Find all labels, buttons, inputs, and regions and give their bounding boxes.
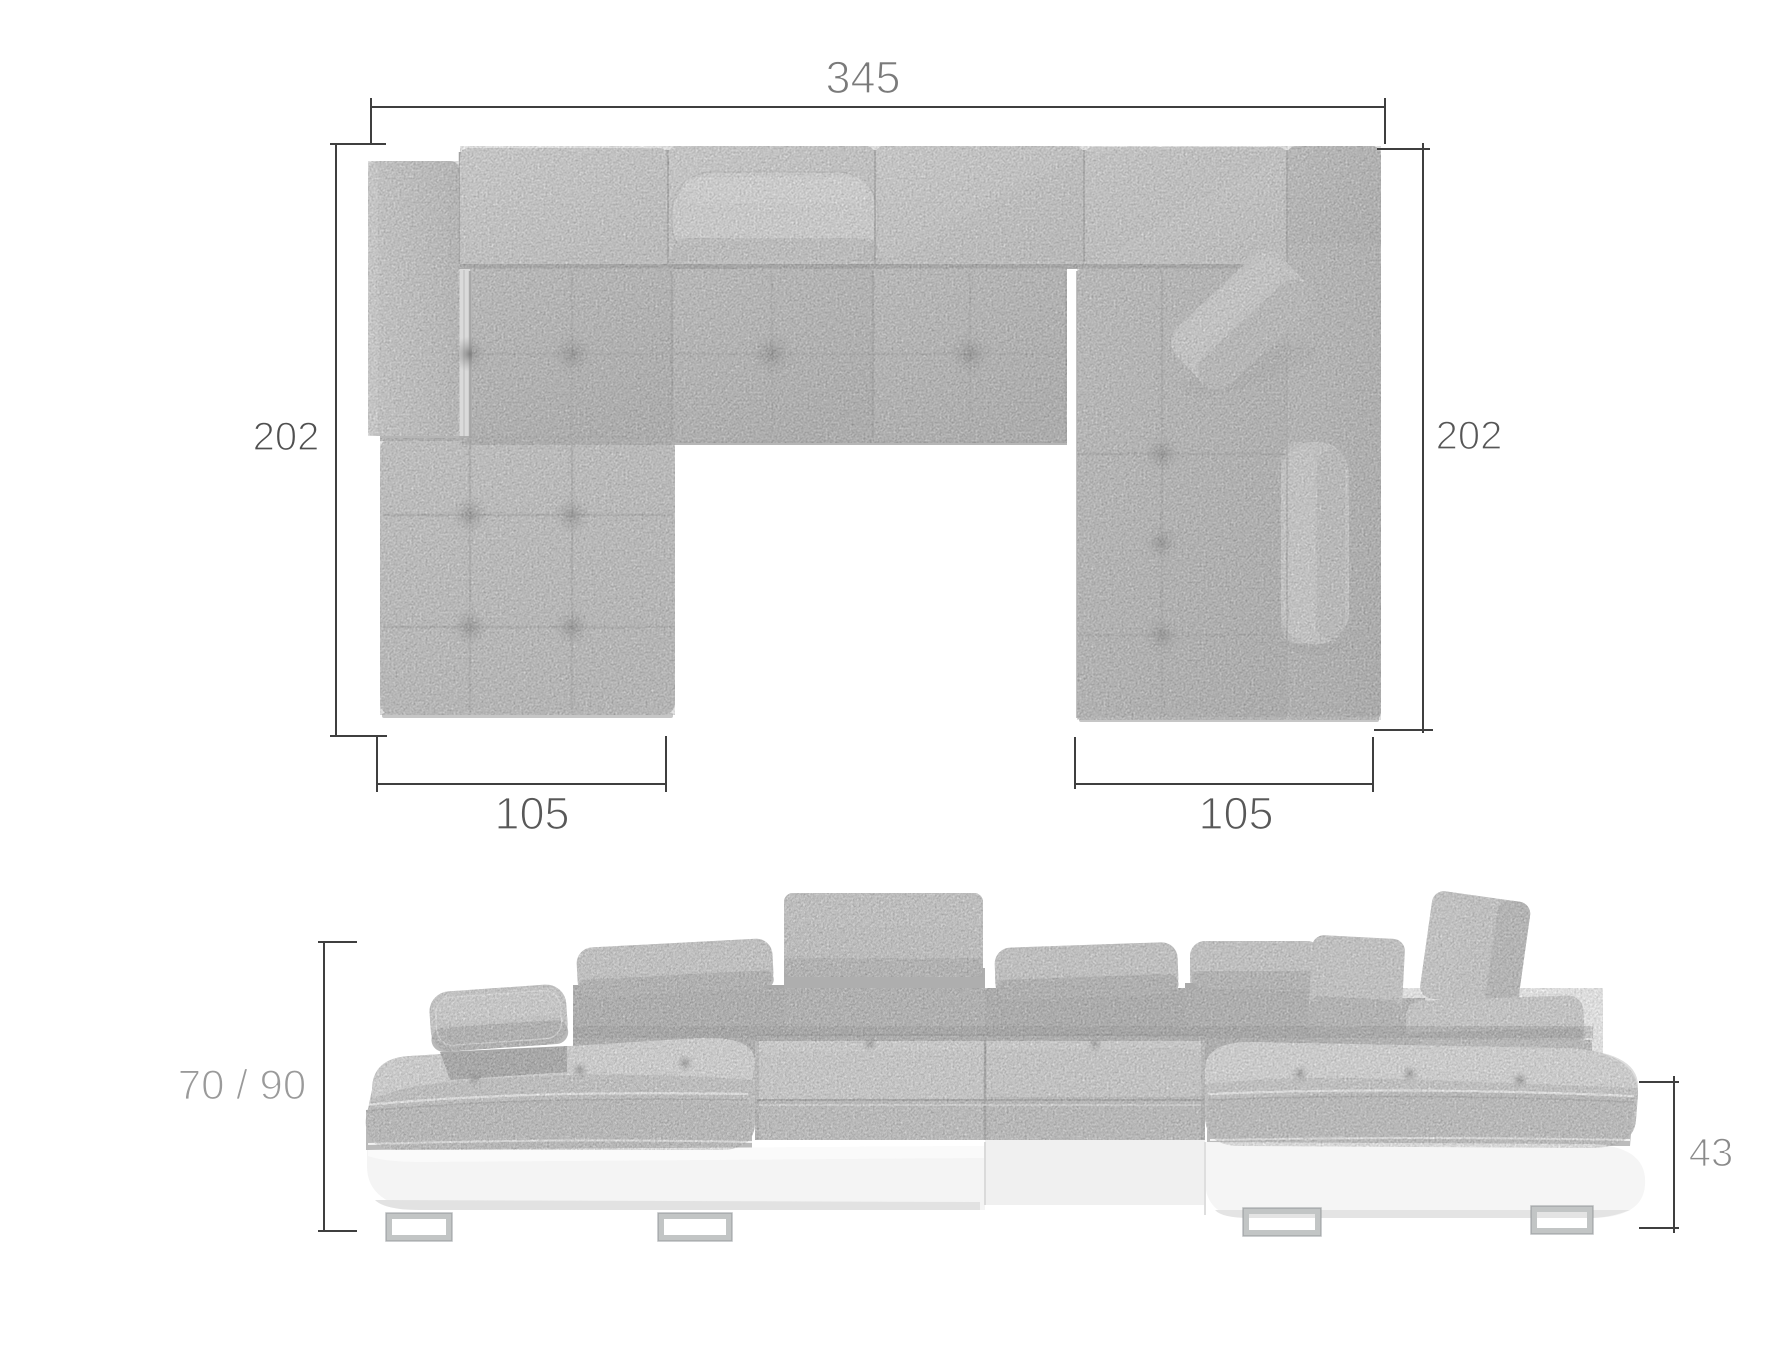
svg-text:345: 345: [825, 52, 900, 103]
svg-text:43: 43: [1689, 1131, 1734, 1175]
svg-text:202: 202: [1436, 414, 1503, 458]
svg-text:70 / 90: 70 / 90: [178, 1061, 306, 1108]
svg-text:202: 202: [253, 415, 320, 459]
svg-text:105: 105: [1198, 788, 1273, 839]
svg-text:105: 105: [494, 788, 569, 839]
